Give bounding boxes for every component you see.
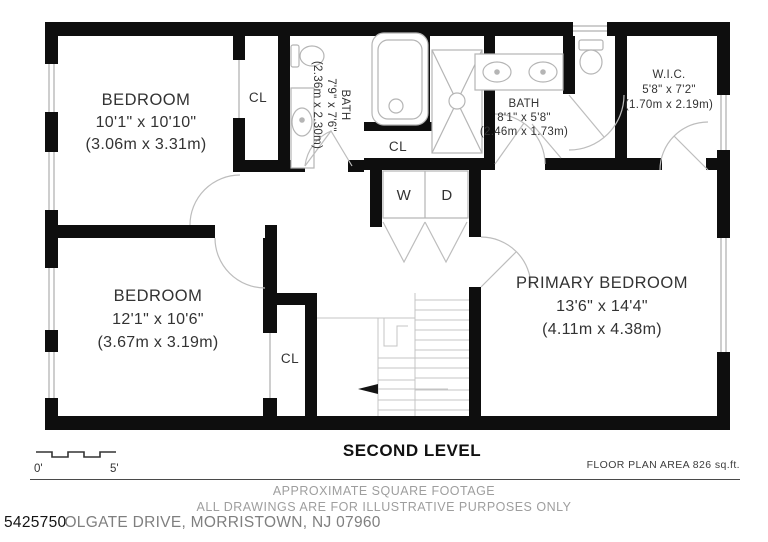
bath-hall-name: BATH <box>339 89 351 120</box>
label-bedroom2: BEDROOM 12'1" x 10'6" (3.67m x 3.19m) <box>98 287 219 351</box>
window-left-3 <box>45 268 58 330</box>
label-wic: W.I.C. 5'8" x 7'2" (1.70m x 2.19m) <box>625 69 713 111</box>
bath-hall-dims: 7'9" x 7'6" <box>325 78 337 132</box>
sink-icon <box>291 88 314 168</box>
bedroom1-dims: 10'1" x 10'10" <box>96 114 197 131</box>
disclaimer-line-2: ALL DRAWINGS ARE FOR ILLUSTRATIVE PURPOS… <box>0 499 768 515</box>
closet-bedroom1-label: CL <box>249 90 267 105</box>
stair-direction-arrow <box>358 384 378 394</box>
window-left-4 <box>45 352 58 398</box>
toilet-icon-2 <box>579 40 603 74</box>
level-title: SECOND LEVEL <box>56 441 768 461</box>
window-left-2 <box>45 152 58 210</box>
bifold-doors-laundry <box>383 222 467 262</box>
footer-divider <box>30 479 740 480</box>
wic-metric: (1.70m x 2.19m) <box>625 99 713 111</box>
floor-plan-area-note: FLOOR PLAN AREA 826 sq.ft. <box>587 459 740 471</box>
bedroom1-name: BEDROOM <box>102 91 191 109</box>
bedroom2-dims: 12'1" x 10'6" <box>112 311 204 328</box>
window-left-1 <box>45 64 58 112</box>
wic-dims: 5'8" x 7'2" <box>642 84 696 96</box>
door-arc-bedroom1 <box>190 175 240 225</box>
door-leaf-wic <box>674 136 708 170</box>
bath-primary-name: BATH <box>508 98 539 110</box>
bedroom2-name: BEDROOM <box>114 287 203 305</box>
double-sink-icon <box>475 54 563 90</box>
window-right-primary <box>717 238 730 352</box>
bath-primary-metric: (2.46m x 1.73m) <box>480 126 568 138</box>
bedroom2-metric: (3.67m x 3.19m) <box>98 334 219 351</box>
scale-bar: 0' 5' <box>28 444 138 478</box>
bedroom1-metric: (3.06m x 3.31m) <box>86 136 207 153</box>
closet-hall-label: CL <box>389 139 407 154</box>
label-bath-hall: BATH 7'9" x 7'6" (2.36m x 2.30m) <box>311 61 351 149</box>
address-text: OLGATE DRIVE, MORRISTOWN, NJ 07960 <box>64 514 380 531</box>
window-top-toilet <box>573 22 607 36</box>
stairs <box>317 293 469 416</box>
floor-plan-canvas: BEDROOM 10'1" x 10'10" (3.06m x 3.31m) B… <box>0 0 768 440</box>
disclaimer-line-1: APPROXIMATE SQUARE FOOTAGE <box>0 483 768 499</box>
bath-primary-dims: 8'1" x 5'8" <box>497 112 551 124</box>
bath-hall-metric: (2.36m x 2.30m) <box>311 61 323 149</box>
door-leaf-primary-bedroom <box>481 252 516 287</box>
label-bedroom1: BEDROOM 10'1" x 10'10" (3.06m x 3.31m) <box>86 91 207 153</box>
wic-name: W.I.C. <box>652 69 685 81</box>
scale-start-label: 0' <box>34 463 43 475</box>
scale-end-label: 5' <box>110 463 119 475</box>
primary-bedroom-metric: (4.11m x 4.38m) <box>542 321 662 338</box>
bathtub-icon <box>372 33 428 125</box>
label-primary-bedroom: PRIMARY BEDROOM 13'6" x 14'4" (4.11m x 4… <box>516 274 688 338</box>
scale-bar-line <box>36 452 116 457</box>
primary-bedroom-dims: 13'6" x 14'4" <box>556 298 648 315</box>
dryer-label: D <box>441 187 452 204</box>
washer-label: W <box>397 187 412 204</box>
window-right-wic <box>717 95 730 150</box>
door-arc-bedroom2 <box>215 238 265 288</box>
disclaimer-block: APPROXIMATE SQUARE FOOTAGE ALL DRAWINGS … <box>0 483 768 515</box>
door-leaf-toilet-room <box>569 95 604 137</box>
listing-number: 5425750 <box>4 514 66 531</box>
closet-bedroom2-label: CL <box>281 351 299 366</box>
address-row: 5425750OLGATE DRIVE, MORRISTOWN, NJ 0796… <box>4 514 381 532</box>
primary-bedroom-name: PRIMARY BEDROOM <box>516 274 688 292</box>
